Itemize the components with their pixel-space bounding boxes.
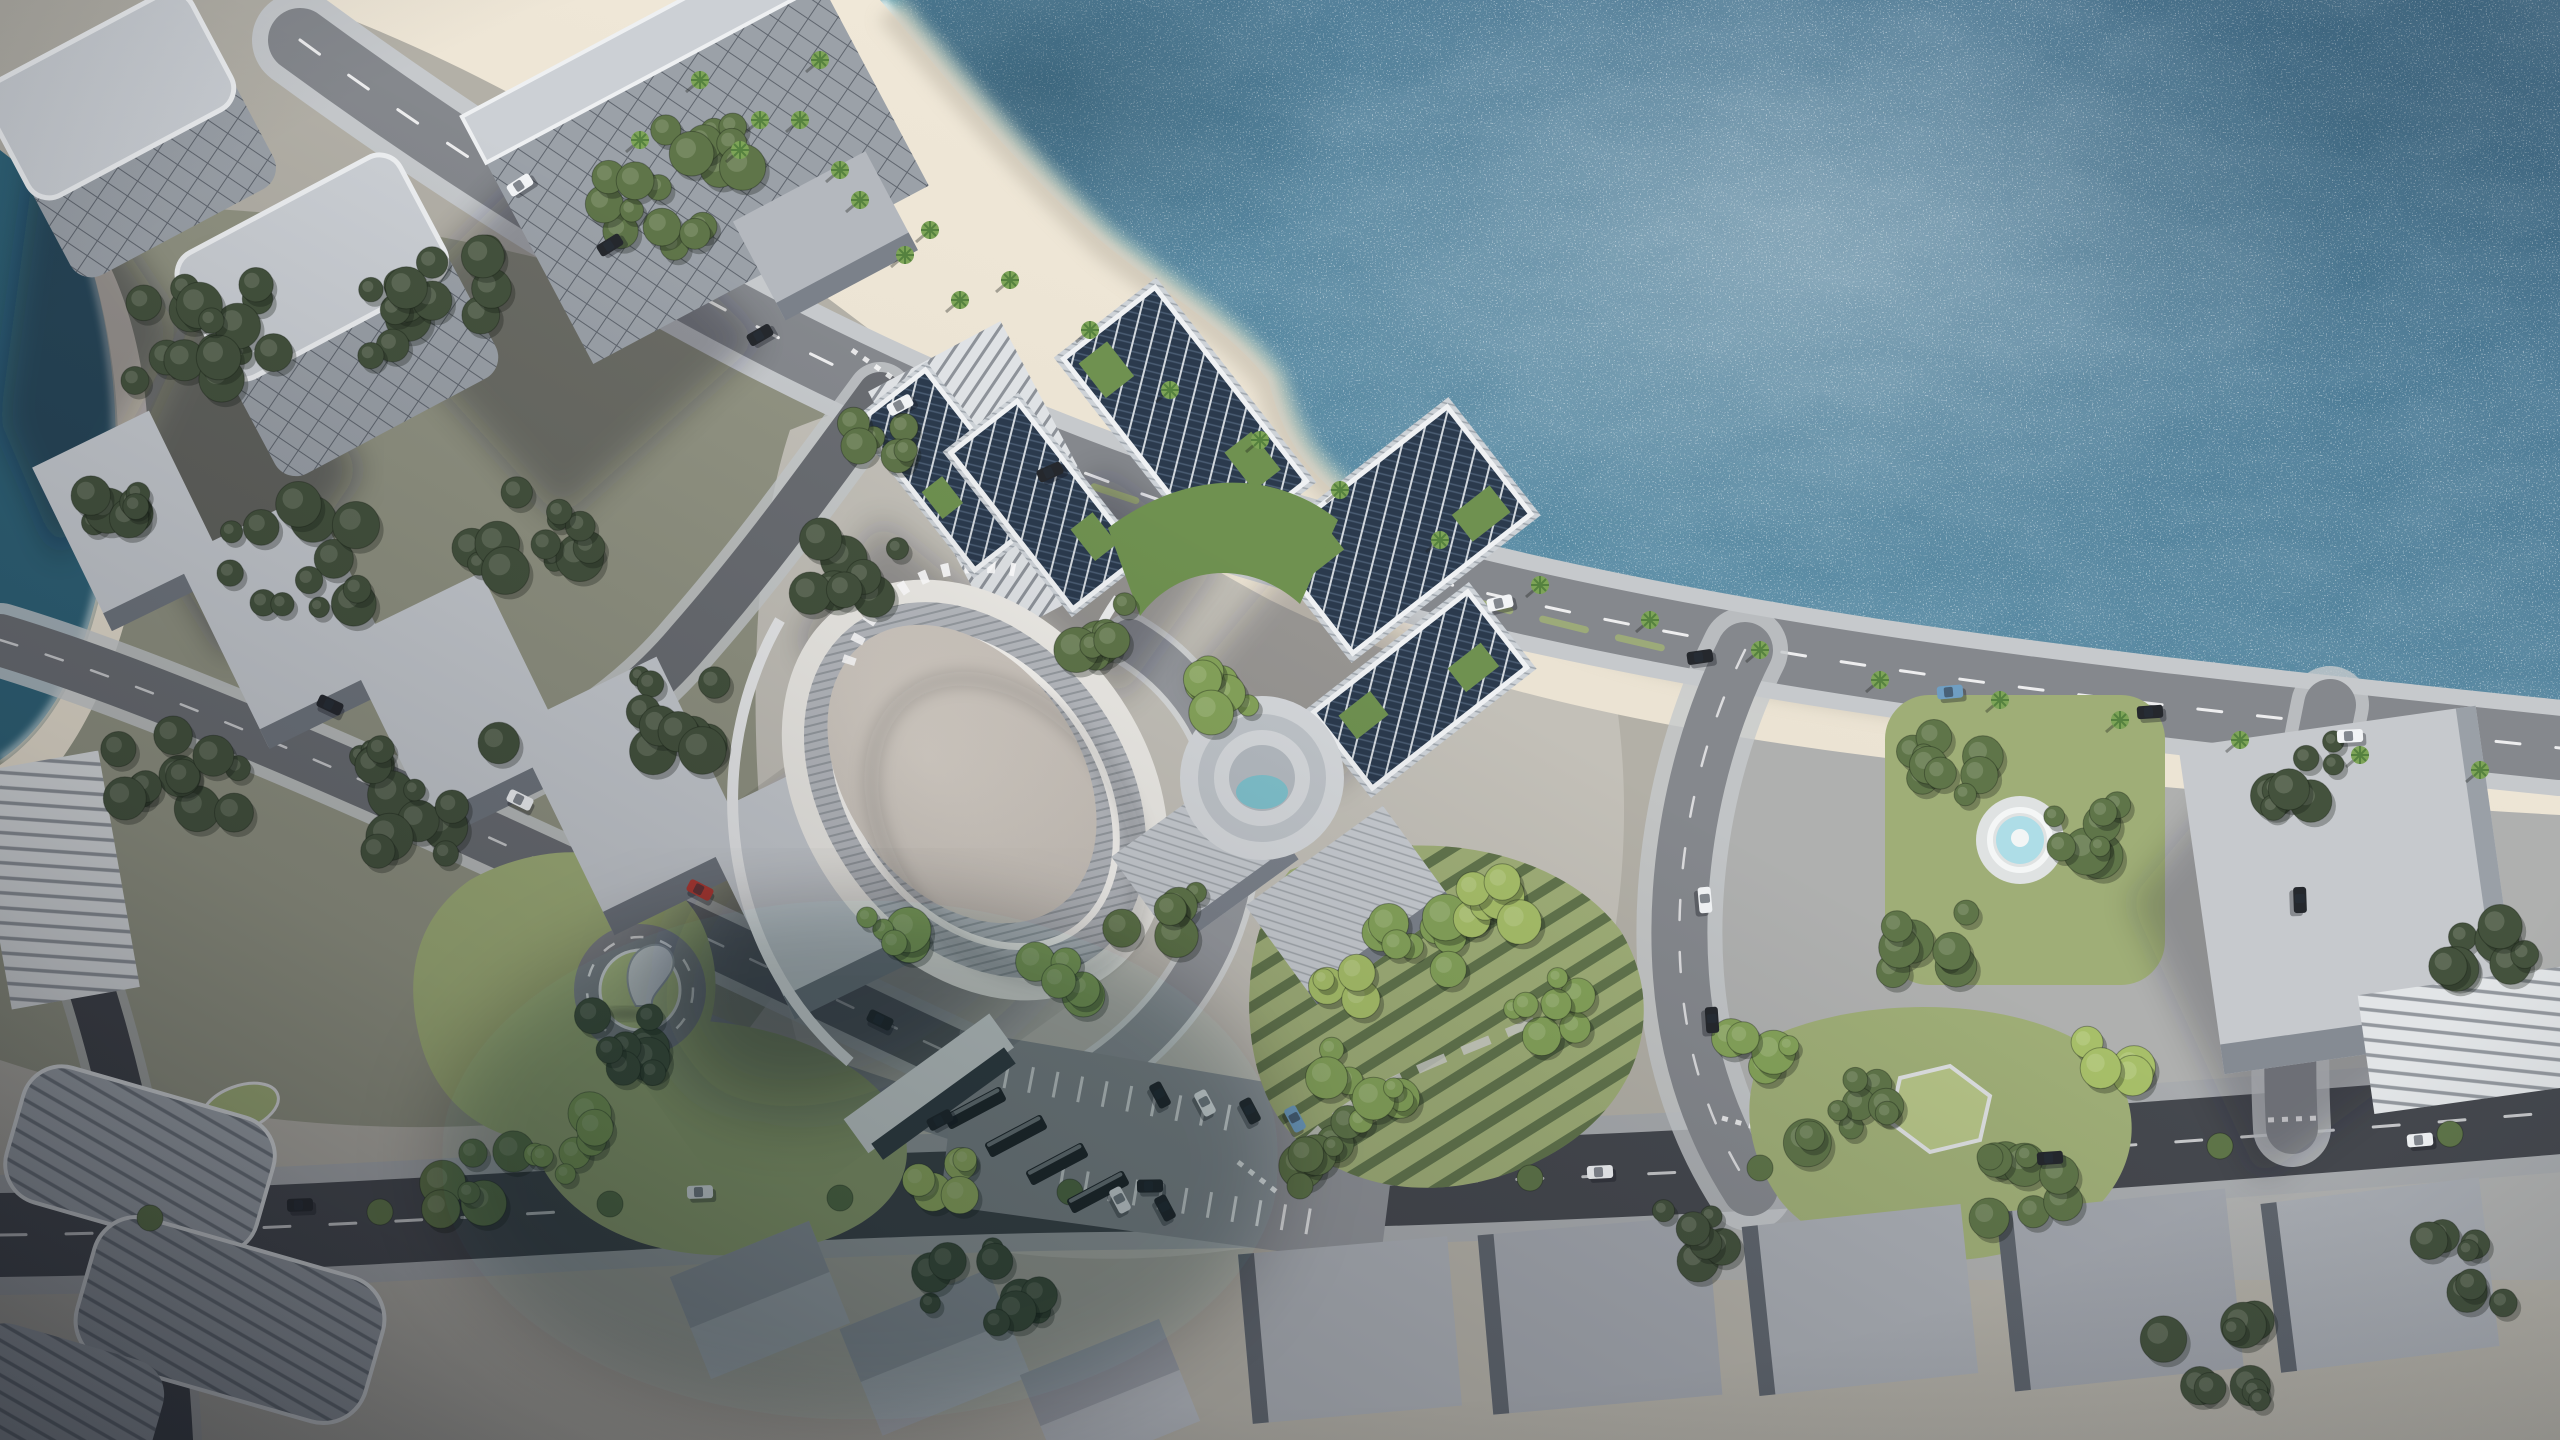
aerial-render-canvas xyxy=(0,0,2560,1440)
light-overlays xyxy=(0,0,2560,1440)
vignette xyxy=(0,0,2560,1440)
scene-svg xyxy=(0,0,2560,1440)
